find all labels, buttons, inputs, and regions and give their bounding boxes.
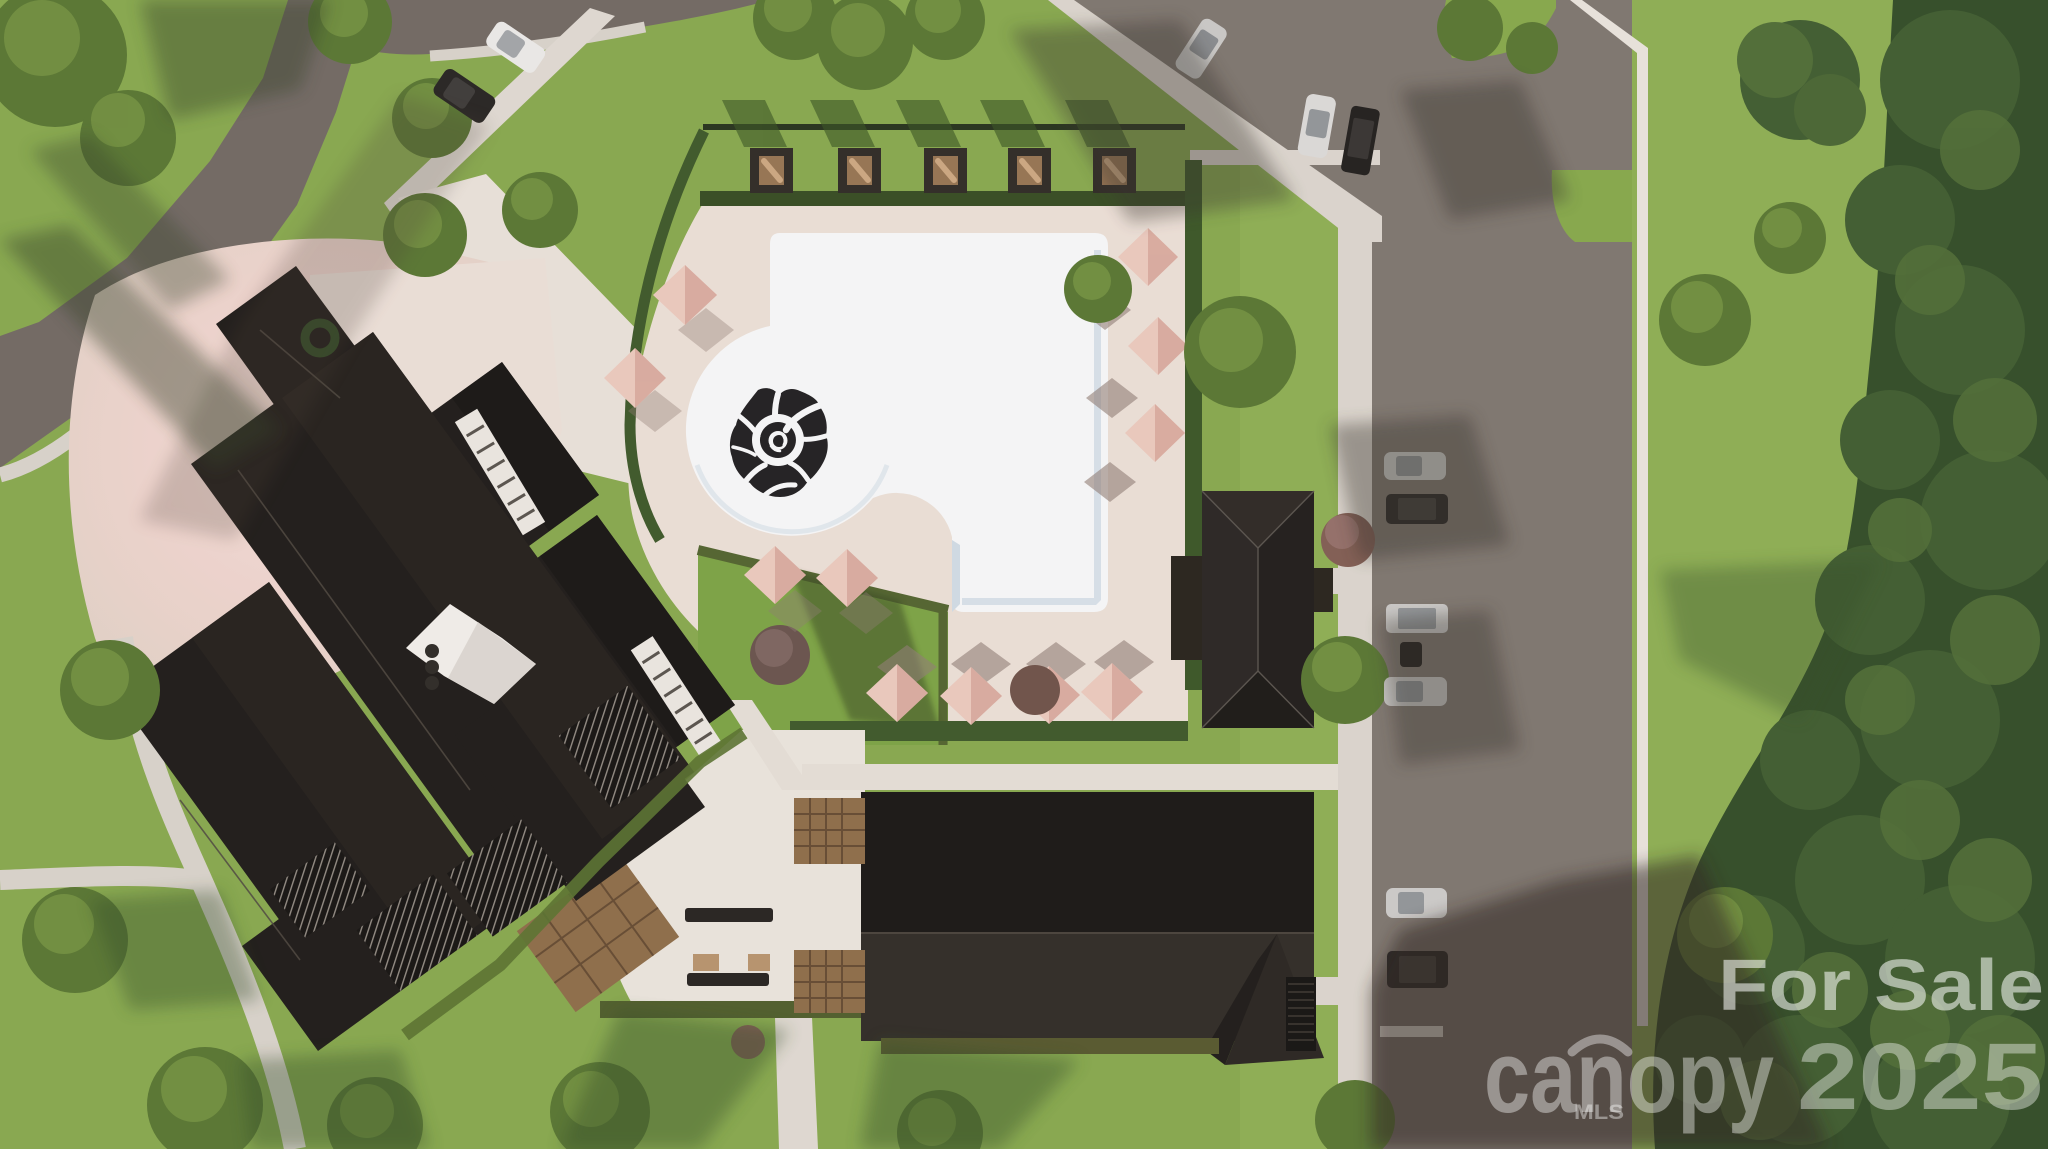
svg-text:2025: 2025 [1797,1024,2043,1130]
svg-text:MLS: MLS [1574,1101,1624,1124]
svg-text:For Sale: For Sale [1718,946,2044,1026]
svg-text:canopy: canopy [1484,1019,1774,1134]
